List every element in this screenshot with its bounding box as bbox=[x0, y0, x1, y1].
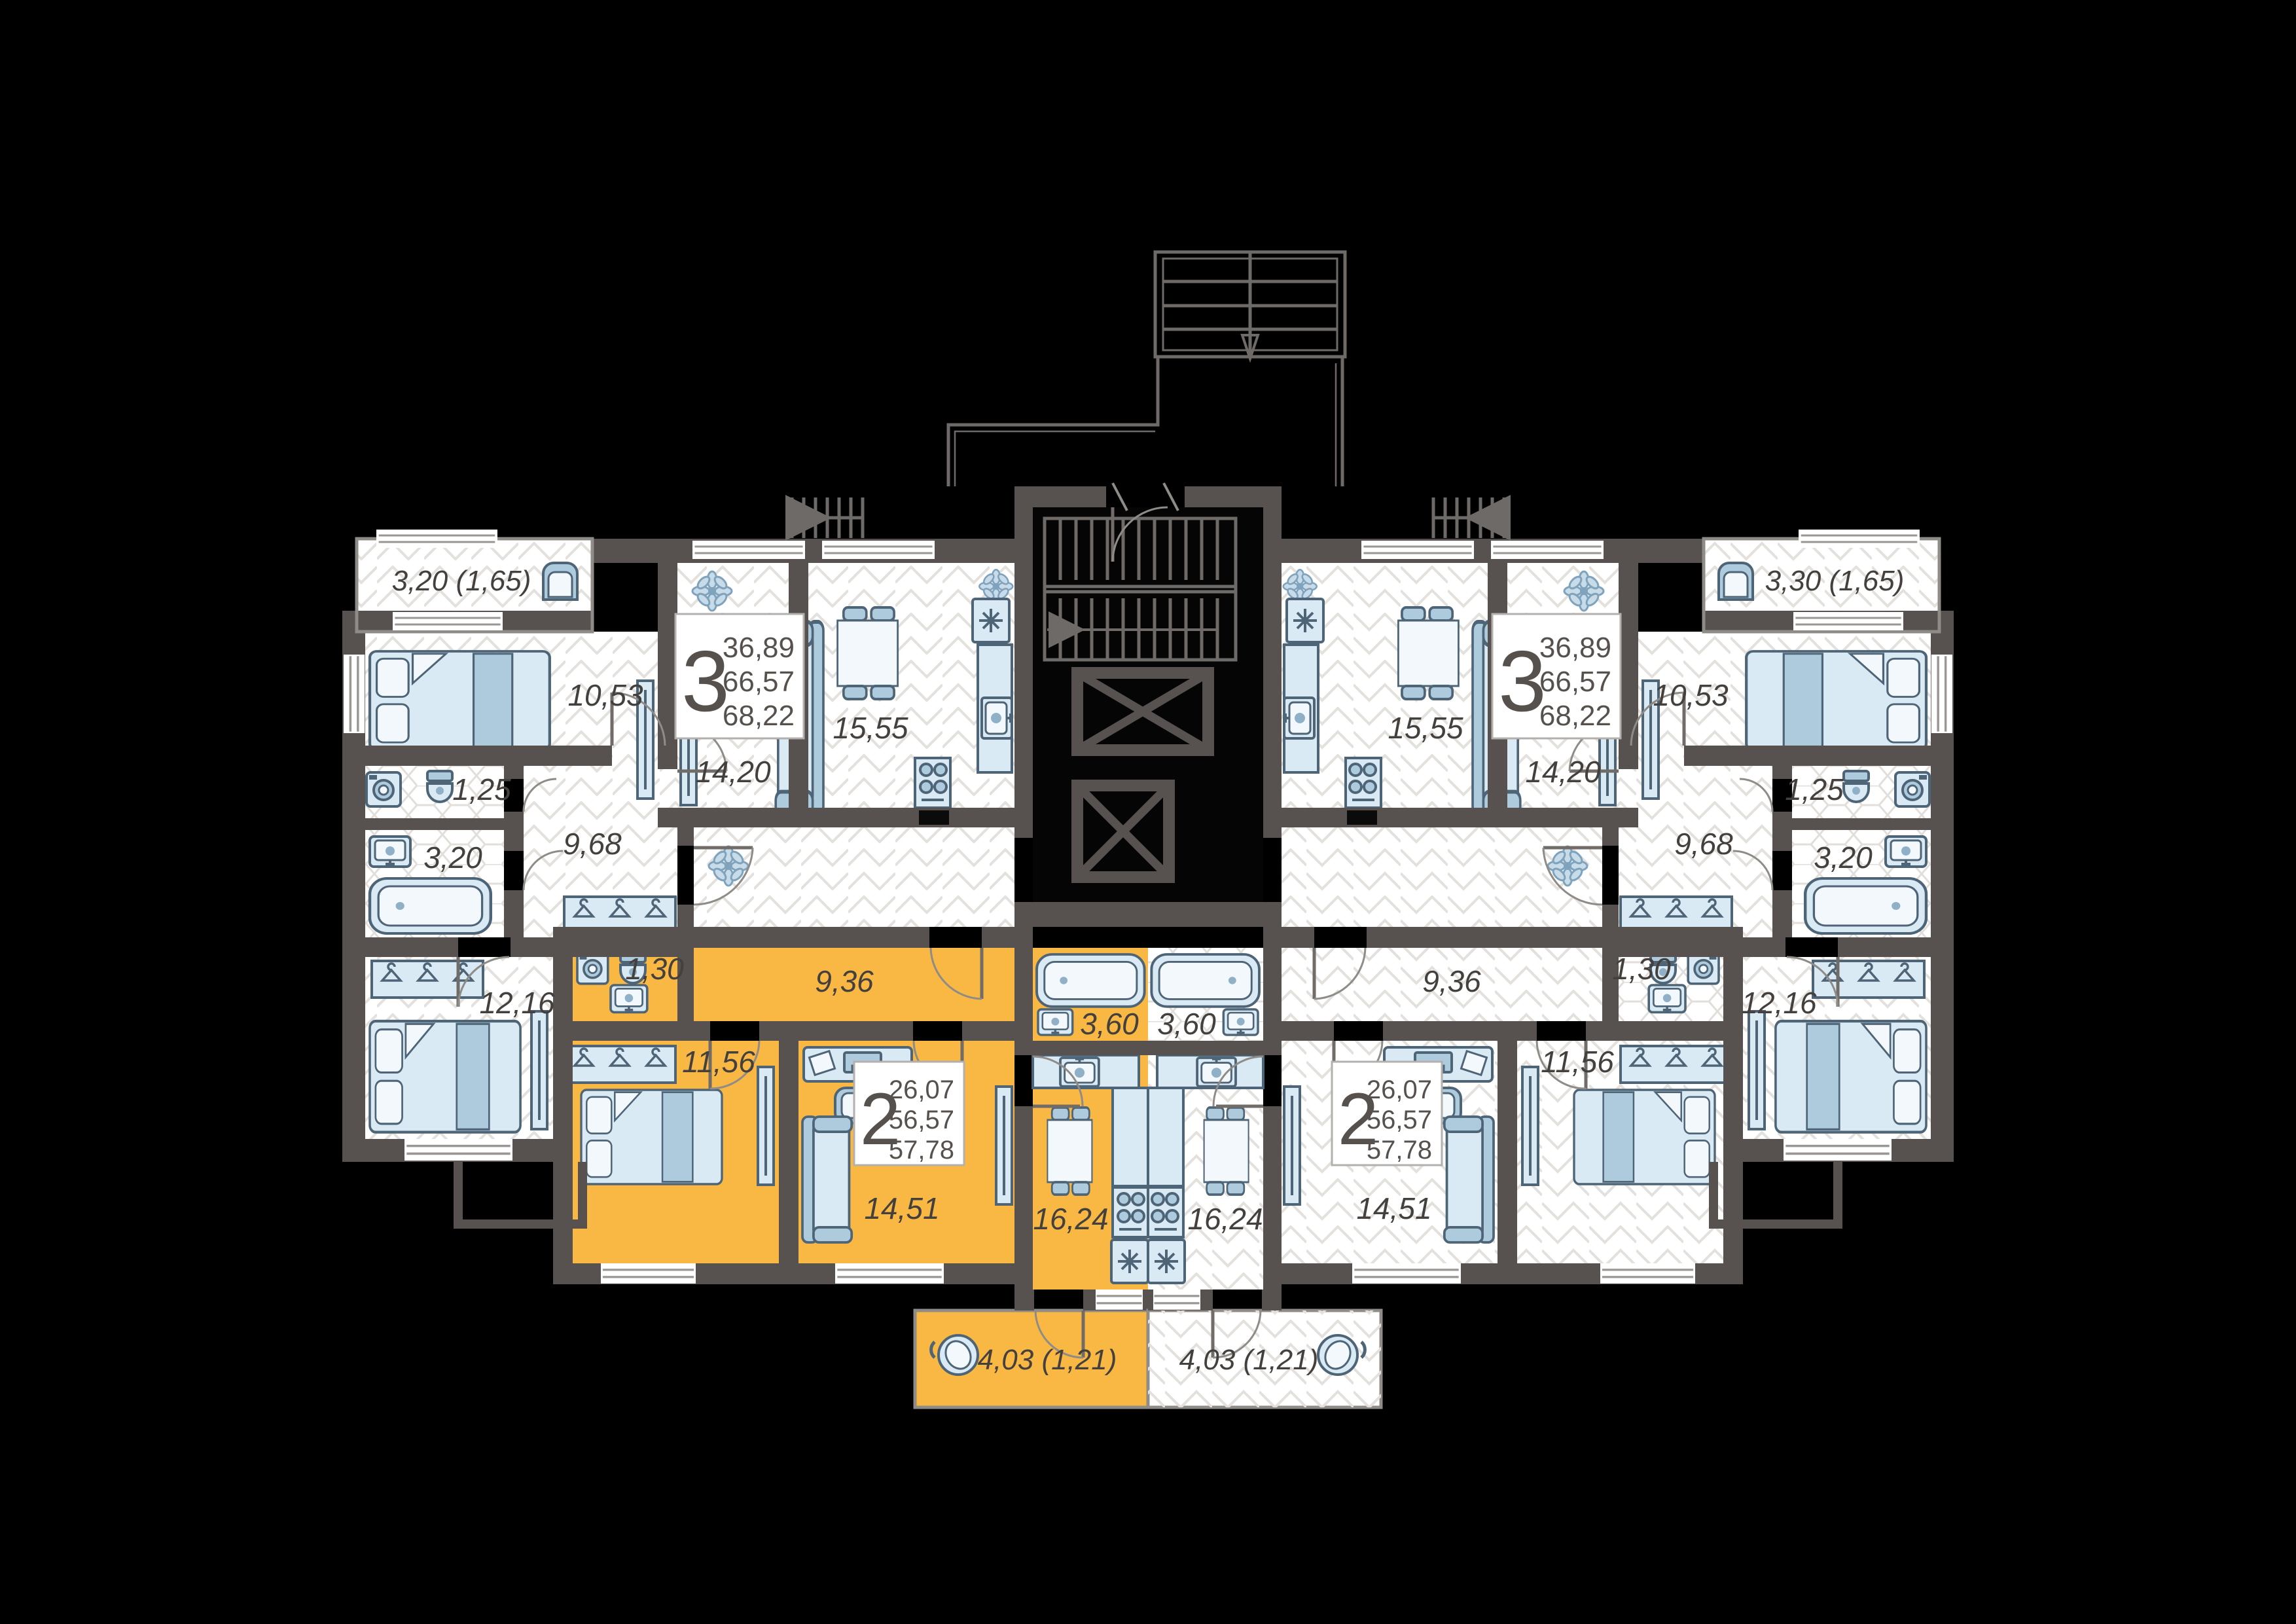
room-label-bathroom: 3,60 bbox=[1080, 1007, 1139, 1041]
apartment-3room-right[interactable] bbox=[1282, 539, 1954, 957]
room-label-bedroom: 10,53 bbox=[1653, 678, 1729, 712]
spec-box-2room-left: 2 26,07 56,57 57,78 bbox=[854, 1062, 964, 1165]
room-label-living: 14,20 bbox=[695, 755, 771, 789]
room-label-bedroom: 10,53 bbox=[567, 678, 643, 712]
room-label-bathroom: 3,60 bbox=[1157, 1007, 1216, 1041]
spec-box-2room-right: 2 26,07 56,57 57,78 bbox=[1332, 1062, 1442, 1165]
room-label-bedroom: 11,56 bbox=[1541, 1045, 1614, 1079]
stair-elevator-core bbox=[1014, 483, 1282, 927]
area-living: 36,89 bbox=[723, 632, 795, 664]
room-label-balcony: 3,30 (1,65) bbox=[1765, 565, 1905, 597]
area-total: 68,22 bbox=[1539, 700, 1611, 732]
room-label-balcony: 4,03 (1,21) bbox=[978, 1344, 1117, 1376]
room-label-living: 14,51 bbox=[1356, 1191, 1431, 1225]
room-label-bedroom2: 12,16 bbox=[1741, 986, 1817, 1020]
room-label-hall: 9,36 bbox=[1422, 964, 1481, 998]
apartment-2room-left-selected[interactable] bbox=[553, 927, 1148, 1407]
room-label-hall: 9,36 bbox=[815, 964, 874, 998]
area-living: 26,07 bbox=[889, 1075, 954, 1104]
room-label-wc: 1,25 bbox=[1785, 772, 1844, 806]
room-label-balcony: 3,20 (1,65) bbox=[392, 565, 531, 597]
area-total: 68,22 bbox=[723, 700, 795, 732]
area-usable: 66,57 bbox=[1539, 666, 1611, 698]
room-label-wc: 1,30 bbox=[625, 952, 684, 986]
area-total: 57,78 bbox=[889, 1136, 954, 1164]
area-living: 26,07 bbox=[1367, 1075, 1432, 1104]
room-label-kitchen: 16,24 bbox=[1187, 1202, 1263, 1236]
apartment-2room-right[interactable] bbox=[1148, 927, 1743, 1407]
room-label-balcony: 4,03 (1,21) bbox=[1179, 1344, 1319, 1376]
room-label-kitchen: 15,55 bbox=[1388, 711, 1463, 745]
room-label-bathroom: 3,20 bbox=[423, 840, 482, 875]
room-label-wc: 1,30 bbox=[1612, 952, 1671, 986]
area-usable: 56,57 bbox=[1367, 1106, 1432, 1134]
room-label-kitchen: 15,55 bbox=[833, 711, 908, 745]
room-label-bedroom2: 12,16 bbox=[479, 986, 555, 1020]
apartment-3room-left[interactable] bbox=[342, 539, 1014, 957]
room-label-hall: 9,68 bbox=[1674, 827, 1733, 861]
room-label-living: 14,51 bbox=[864, 1191, 939, 1225]
room-label-kitchen: 16,24 bbox=[1033, 1202, 1108, 1236]
room-label-wc: 1,25 bbox=[452, 772, 511, 806]
room-label-living: 14,20 bbox=[1525, 755, 1601, 789]
area-living: 36,89 bbox=[1539, 632, 1611, 664]
room-label-hall: 9,68 bbox=[563, 827, 622, 861]
room-label-bedroom: 11,56 bbox=[682, 1045, 755, 1079]
area-total: 57,78 bbox=[1367, 1136, 1432, 1164]
area-usable: 56,57 bbox=[889, 1106, 954, 1134]
room-label-bathroom: 3,20 bbox=[1814, 840, 1873, 875]
spec-box-3room-left: 3 36,89 66,57 68,22 bbox=[675, 614, 804, 738]
floor-plan-stage: 3 36,89 66,57 68,22 3 36,89 66,57 68,22 … bbox=[0, 0, 2296, 1624]
area-usable: 66,57 bbox=[723, 666, 795, 698]
spec-box-3room-right: 3 36,89 66,57 68,22 bbox=[1492, 614, 1621, 738]
floor-plan-canvas: 3 36,89 66,57 68,22 3 36,89 66,57 68,22 … bbox=[0, 0, 2296, 1624]
